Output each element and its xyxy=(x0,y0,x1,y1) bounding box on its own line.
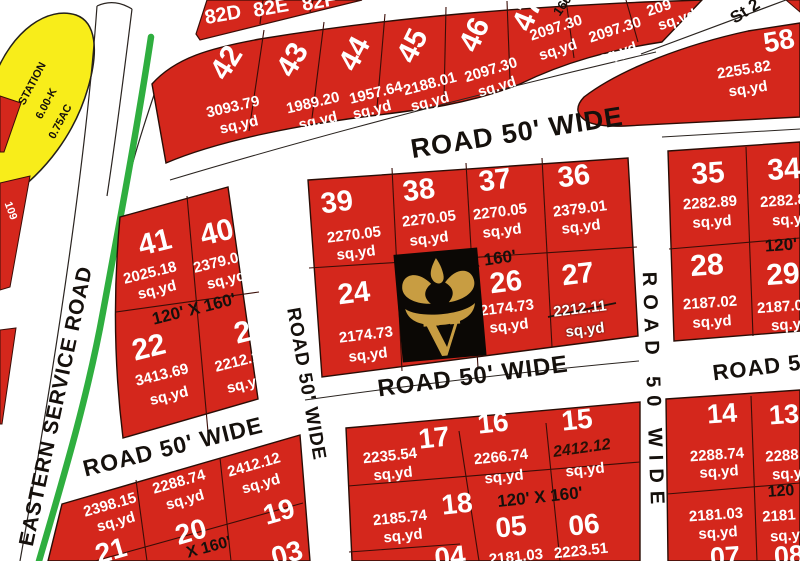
plot-map: STATION 6.00-K 0.75AC 109 82D 82E 82F 42… xyxy=(0,0,800,561)
developer-logo: V xyxy=(0,0,800,561)
logo-letter: V xyxy=(422,311,465,368)
